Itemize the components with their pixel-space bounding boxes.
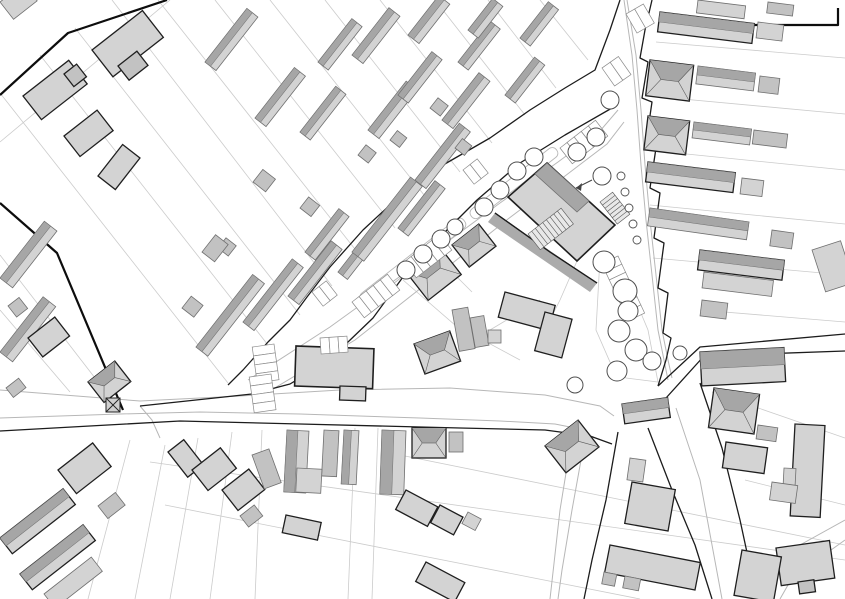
bollard-icon — [633, 236, 641, 244]
building — [602, 572, 617, 586]
tree-icon — [608, 320, 630, 342]
building-footprint — [769, 482, 797, 503]
building-footprint — [776, 540, 835, 585]
building-footprint — [758, 76, 780, 94]
building-footprint — [627, 458, 646, 482]
parking-row — [249, 374, 276, 413]
building — [296, 468, 322, 493]
building — [756, 22, 784, 41]
tree-icon — [397, 261, 415, 279]
building — [758, 76, 780, 94]
building — [623, 576, 641, 591]
building — [644, 116, 690, 155]
parking-slot — [329, 337, 339, 354]
tree-icon — [414, 245, 432, 263]
tree-icon — [601, 91, 619, 109]
tree-icon — [593, 251, 615, 273]
site-plan-map — [0, 0, 845, 599]
tree-icon — [593, 167, 611, 185]
building — [769, 482, 797, 503]
bollard-icon — [621, 188, 629, 196]
tree-icon — [568, 143, 586, 161]
building-footprint — [625, 482, 676, 531]
bollard-icon — [629, 220, 637, 228]
building — [340, 386, 366, 401]
building — [700, 300, 728, 319]
building — [708, 388, 759, 434]
tree-icon — [607, 361, 627, 381]
building — [341, 430, 359, 485]
parking-slot — [338, 336, 348, 353]
tree-icon — [567, 377, 583, 393]
building-footprint — [756, 425, 778, 442]
building-footprint — [322, 430, 339, 477]
bollard-icon — [625, 204, 633, 212]
building-footprint — [734, 550, 781, 599]
tree-icon — [432, 230, 450, 248]
tree-icon — [447, 219, 463, 235]
building-footprint — [623, 576, 641, 591]
building-footprint — [740, 178, 764, 197]
building — [756, 425, 778, 442]
parking-slot — [320, 337, 330, 354]
tree-icon — [643, 352, 661, 370]
tree-icon — [618, 301, 638, 321]
building — [380, 430, 406, 495]
building-footprint — [798, 580, 816, 594]
building-footprint — [449, 432, 463, 452]
building — [722, 442, 767, 474]
building — [627, 458, 646, 482]
building — [488, 330, 501, 343]
building — [770, 230, 794, 249]
roof-face — [380, 430, 394, 494]
tree-icon — [613, 279, 637, 303]
tree-icon — [525, 148, 543, 166]
tree-icon — [491, 181, 509, 199]
building — [740, 178, 764, 197]
building — [798, 580, 816, 594]
parking-row — [320, 336, 348, 354]
building — [734, 550, 781, 599]
building-footprint — [340, 386, 366, 401]
building-footprint — [722, 442, 767, 474]
building — [449, 432, 463, 452]
building — [322, 430, 339, 477]
building — [646, 60, 694, 101]
building-footprint — [602, 572, 617, 586]
building — [700, 348, 786, 386]
tree-icon — [508, 162, 526, 180]
building-footprint — [488, 330, 501, 343]
tree-icon — [475, 198, 493, 216]
building-footprint — [296, 468, 322, 493]
building — [776, 540, 835, 585]
building-footprint — [700, 300, 728, 319]
site-plan-canvas — [0, 0, 845, 599]
tree-icon — [587, 128, 605, 146]
building-footprint — [770, 230, 794, 249]
boundary-marker-icon — [106, 398, 120, 412]
bollard-icon — [617, 172, 625, 180]
building-footprint — [756, 22, 784, 41]
building — [625, 482, 676, 531]
tree-icon — [673, 346, 687, 360]
building — [412, 428, 446, 458]
